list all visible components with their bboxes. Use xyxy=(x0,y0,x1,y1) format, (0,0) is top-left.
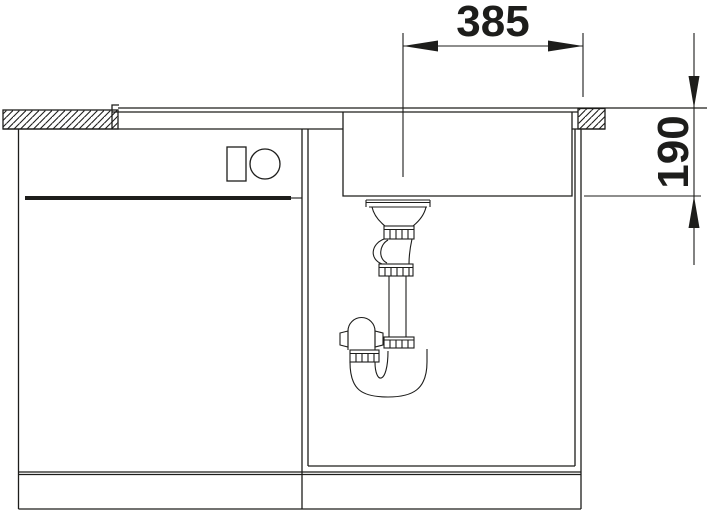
drain-nut-lower xyxy=(379,264,413,276)
dim-width-arrow-right xyxy=(548,41,583,52)
dim-depth-arrow-top xyxy=(689,76,700,108)
dim-width-arrow-left xyxy=(403,41,438,52)
drain-pipe xyxy=(389,276,406,337)
sink-bowl xyxy=(343,112,572,196)
drain-flange xyxy=(366,200,430,207)
dimension-width: 385 xyxy=(403,0,583,177)
drain-funnel xyxy=(372,207,426,226)
trap-nut-cleanout xyxy=(350,350,379,362)
dimension-depth: 190 xyxy=(584,33,701,265)
appliance-control-knob xyxy=(250,149,280,179)
drawing-canvas: 385 190 xyxy=(0,0,707,514)
drain-nut-upper xyxy=(384,226,414,239)
drain-assembly xyxy=(366,200,430,337)
appliance-panel-divider xyxy=(25,196,291,200)
trap-nut-inlet xyxy=(384,337,414,348)
dim-depth-arrow-bottom xyxy=(689,196,700,228)
appliance-control-rect xyxy=(227,147,246,181)
countertop-section-right xyxy=(578,109,605,130)
countertop-section-left xyxy=(3,110,118,129)
drain-elbow xyxy=(373,239,412,264)
dim-depth-label: 190 xyxy=(649,115,698,188)
siphon-trap xyxy=(340,318,427,398)
base-cabinets xyxy=(19,129,582,509)
sink-technical-drawing: 385 190 xyxy=(0,0,707,514)
dim-width-label: 385 xyxy=(456,0,529,46)
trap-cleanout-cap xyxy=(340,318,383,351)
